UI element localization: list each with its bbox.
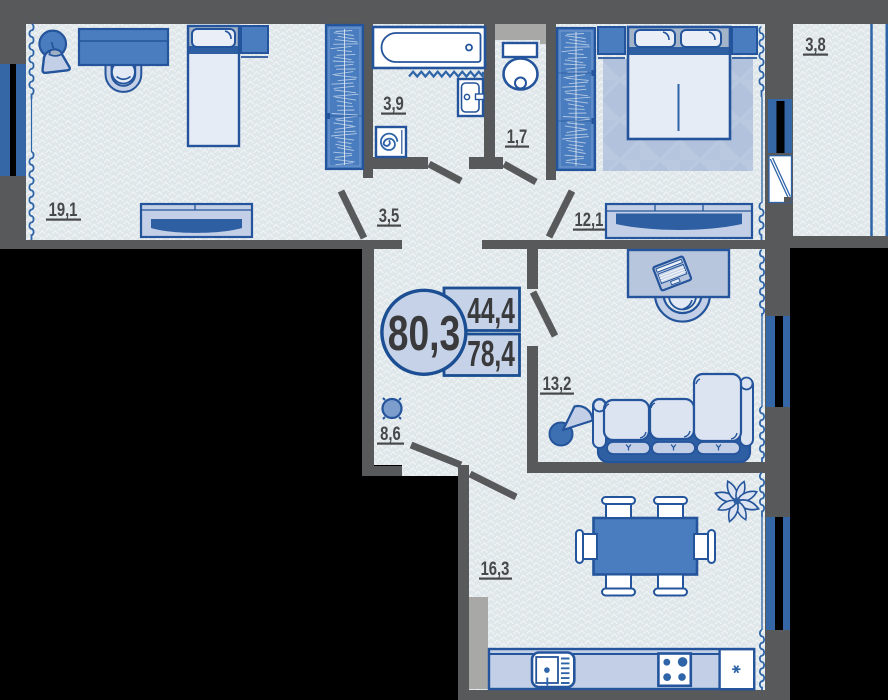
svg-text:13,2: 13,2 <box>543 373 572 394</box>
svg-text:80,3: 80,3 <box>388 307 460 361</box>
svg-text:3,5: 3,5 <box>379 205 400 226</box>
svg-text:44,4: 44,4 <box>467 290 515 331</box>
svg-text:3,9: 3,9 <box>383 93 404 114</box>
svg-text:19,1: 19,1 <box>49 199 78 220</box>
svg-text:78,4: 78,4 <box>467 333 515 374</box>
svg-text:8,6: 8,6 <box>380 423 401 444</box>
svg-text:1,7: 1,7 <box>507 126 528 147</box>
svg-text:3,8: 3,8 <box>805 34 826 55</box>
svg-text:12,1: 12,1 <box>575 209 604 230</box>
svg-text:16,3: 16,3 <box>481 558 510 579</box>
